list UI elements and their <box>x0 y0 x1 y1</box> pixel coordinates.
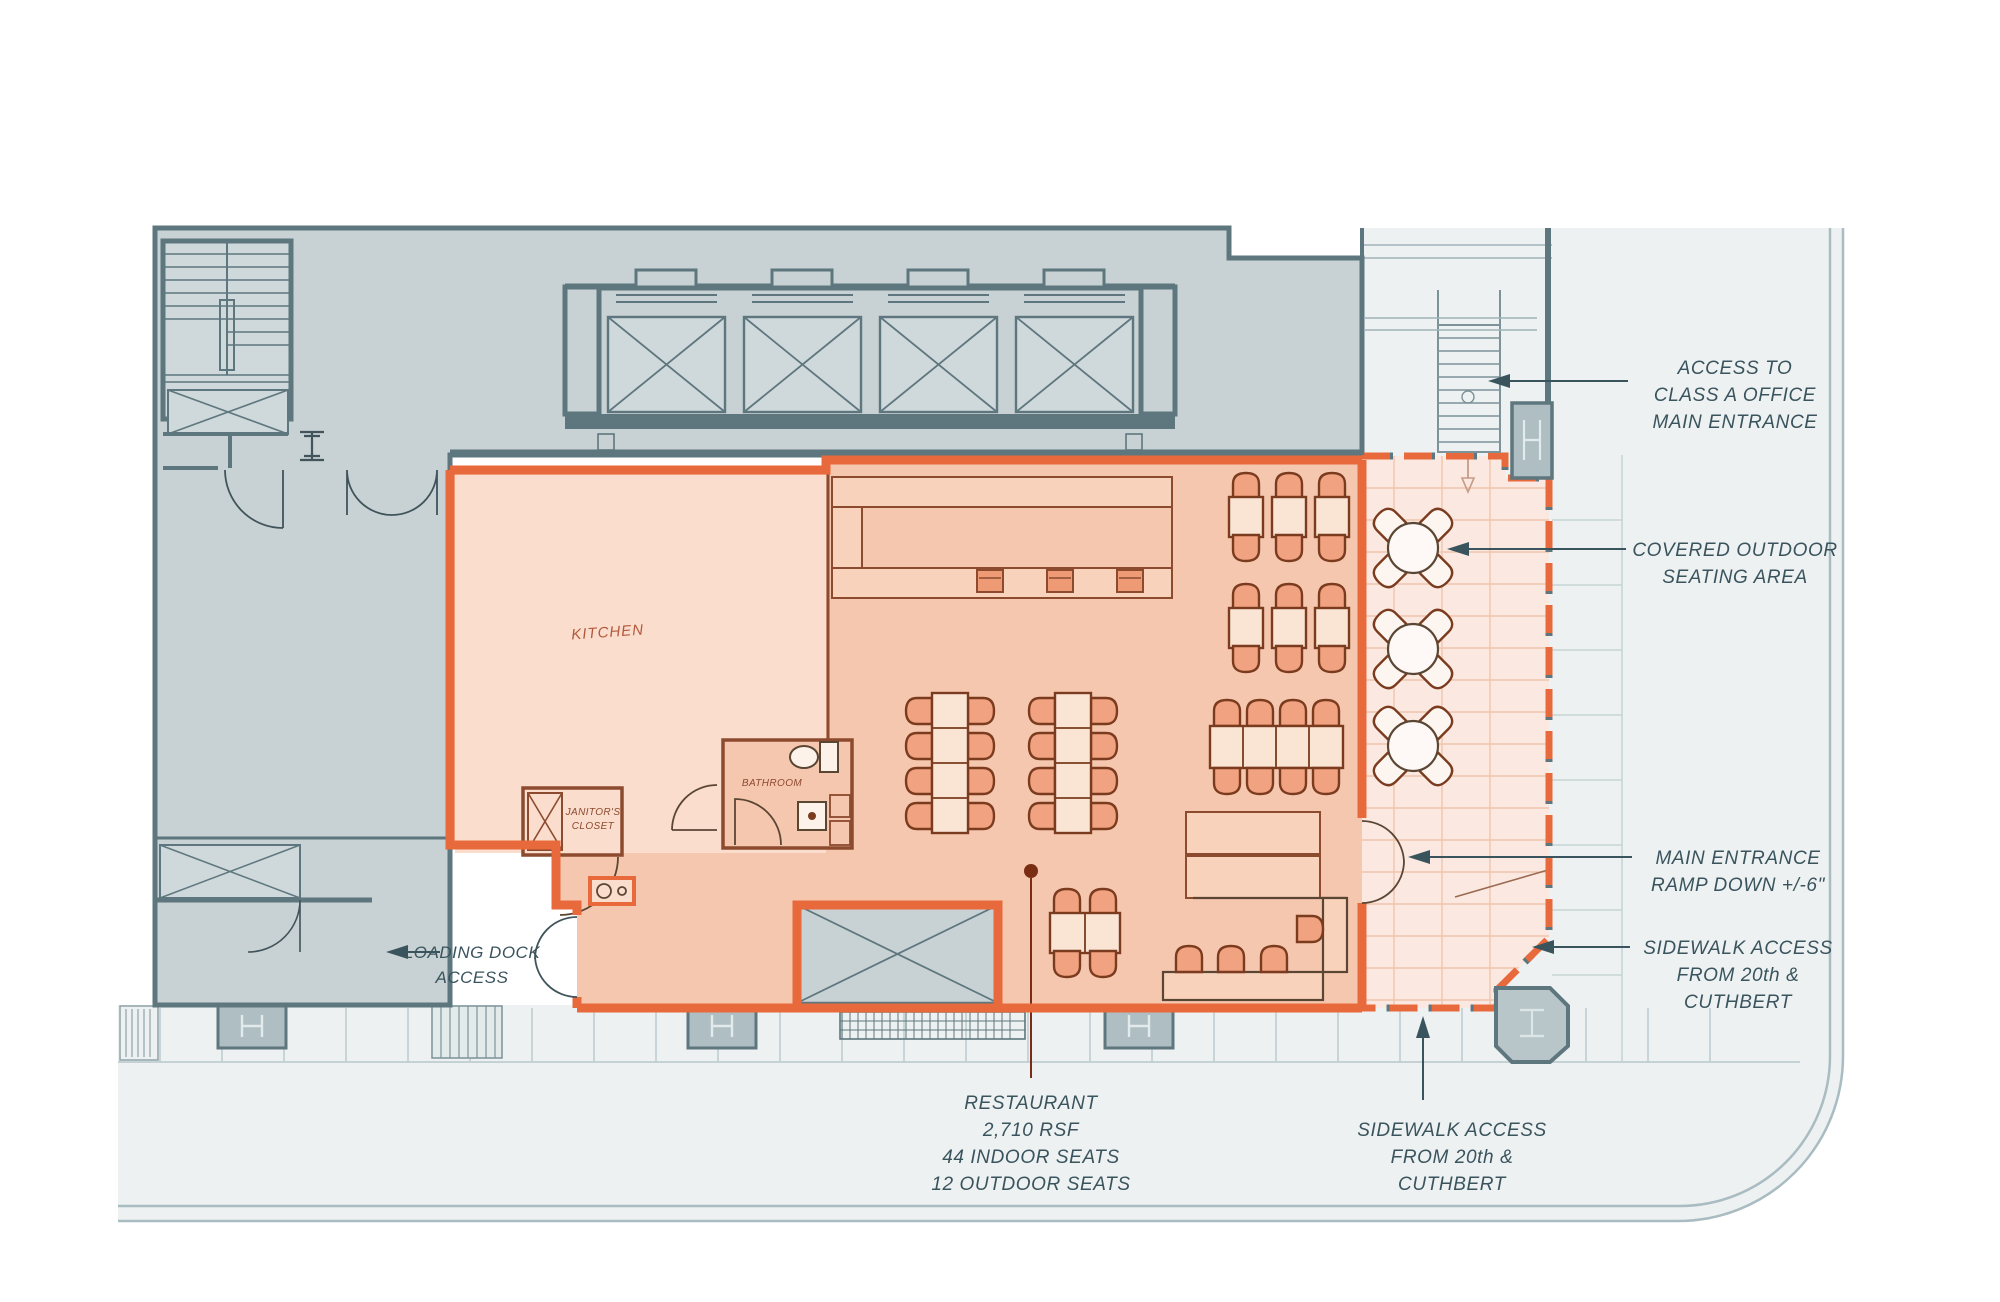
shaft-xbox <box>168 390 288 434</box>
pos-terminal-icon <box>1117 570 1143 592</box>
bathroom-label: BATHROOM <box>742 778 803 789</box>
annotation-text: SIDEWALK ACCESS <box>1643 938 1833 959</box>
stats-line: 12 OUTDOOR SEATS <box>931 1174 1130 1195</box>
annotation-text: LOADING DOCK <box>404 943 541 962</box>
annotation-text: CLASS A OFFICE <box>1654 385 1816 406</box>
annotation-text: FROM 20th & <box>1677 965 1800 986</box>
round-table-icon <box>1388 624 1438 674</box>
annotation-text: CUTHBERT <box>1684 992 1793 1013</box>
two-top-table-row <box>1229 584 1349 672</box>
shaft-xbox-bottom <box>797 905 998 1003</box>
sink-icon <box>798 802 826 830</box>
two-top-table-row <box>1229 473 1349 561</box>
annotation-text: MAIN ENTRANCE <box>1652 412 1817 433</box>
annotation-text: FROM 20th & <box>1391 1147 1514 1168</box>
stair-column <box>1512 403 1552 478</box>
pos-terminal-icon <box>1047 570 1073 592</box>
street-column <box>218 1003 286 1048</box>
janitors-closet-label-line2: CLOSET <box>572 821 615 832</box>
annotation-text: ACCESS <box>435 968 509 987</box>
double-door-icon <box>535 917 577 997</box>
annotation-text: COVERED OUTDOOR <box>1632 540 1837 561</box>
bathroom <box>723 740 852 848</box>
annotation-text: CUTHBERT <box>1398 1174 1507 1195</box>
bar-stool-icon <box>1218 946 1244 972</box>
round-table-icon <box>1388 523 1438 573</box>
annotation-text: SEATING AREA <box>1662 567 1808 588</box>
round-table-icon <box>1388 721 1438 771</box>
floor-plan-drawing: KITCHEN BATHROOM JANITOR'S CLOSET <box>0 0 2000 1302</box>
corner-column <box>1496 988 1568 1062</box>
restaurant-area: KITCHEN BATHROOM JANITOR'S CLOSET <box>450 460 1404 1078</box>
bar-stool-icon <box>1297 916 1323 942</box>
bench <box>1163 972 1323 1000</box>
stats-line: 2,710 RSF <box>982 1120 1080 1141</box>
annotation-text: MAIN ENTRANCE <box>1655 848 1820 869</box>
stats-line: RESTAURANT <box>964 1093 1098 1114</box>
covered-outdoor-seating-area <box>1362 400 1549 1008</box>
bar-counter <box>1323 898 1347 972</box>
bar-stool-icon <box>1261 946 1287 972</box>
areaway-stairs <box>432 1006 502 1058</box>
bar-stool-icon <box>1176 946 1202 972</box>
floor-plan-page: KITCHEN BATHROOM JANITOR'S CLOSET <box>0 0 2000 1302</box>
stats-line: 44 INDOOR SEATS <box>942 1147 1120 1168</box>
pos-terminal-icon <box>977 570 1003 592</box>
janitors-closet-label-line1: JANITOR'S <box>565 807 621 818</box>
annotation-text: RAMP DOWN +/-6" <box>1651 875 1826 896</box>
annotation-text: ACCESS TO <box>1677 358 1793 379</box>
kitchen-sink <box>590 878 634 904</box>
annotation-text: SIDEWALK ACCESS <box>1357 1120 1547 1141</box>
